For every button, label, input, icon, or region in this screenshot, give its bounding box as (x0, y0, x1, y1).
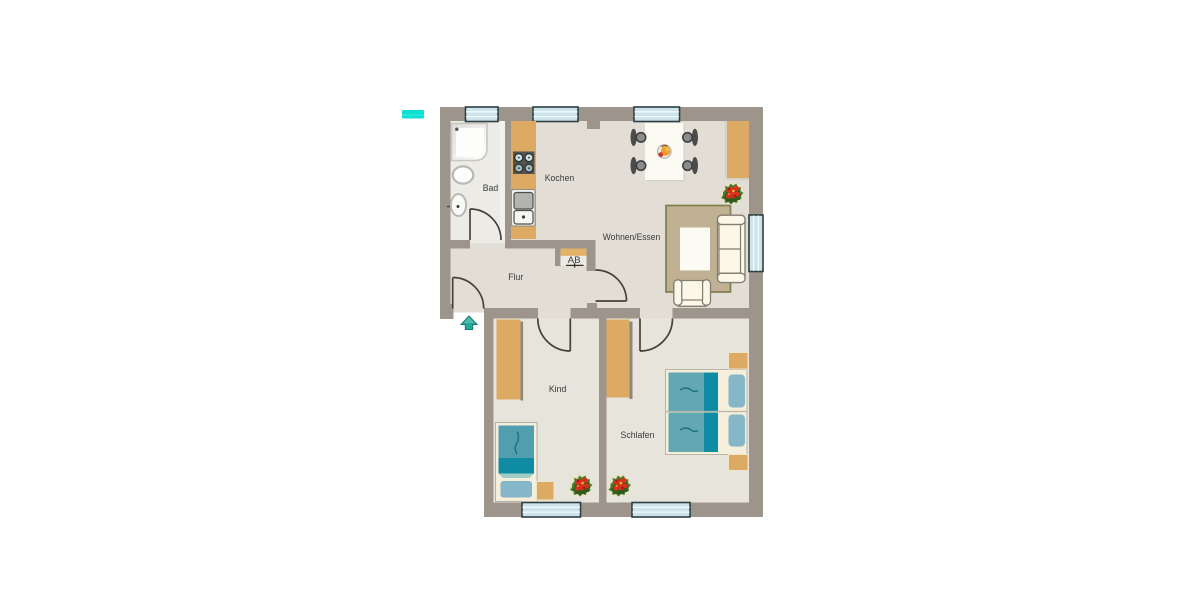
svg-text:Schlafen: Schlafen (621, 430, 655, 441)
svg-text:Flur: Flur (508, 272, 523, 283)
svg-text:Bad: Bad (483, 183, 499, 194)
svg-text:AB: AB (568, 255, 581, 266)
svg-text:Kind: Kind (549, 384, 567, 395)
svg-text:Kochen: Kochen (545, 173, 575, 184)
svg-text:Wohnen/Essen: Wohnen/Essen (603, 232, 661, 243)
